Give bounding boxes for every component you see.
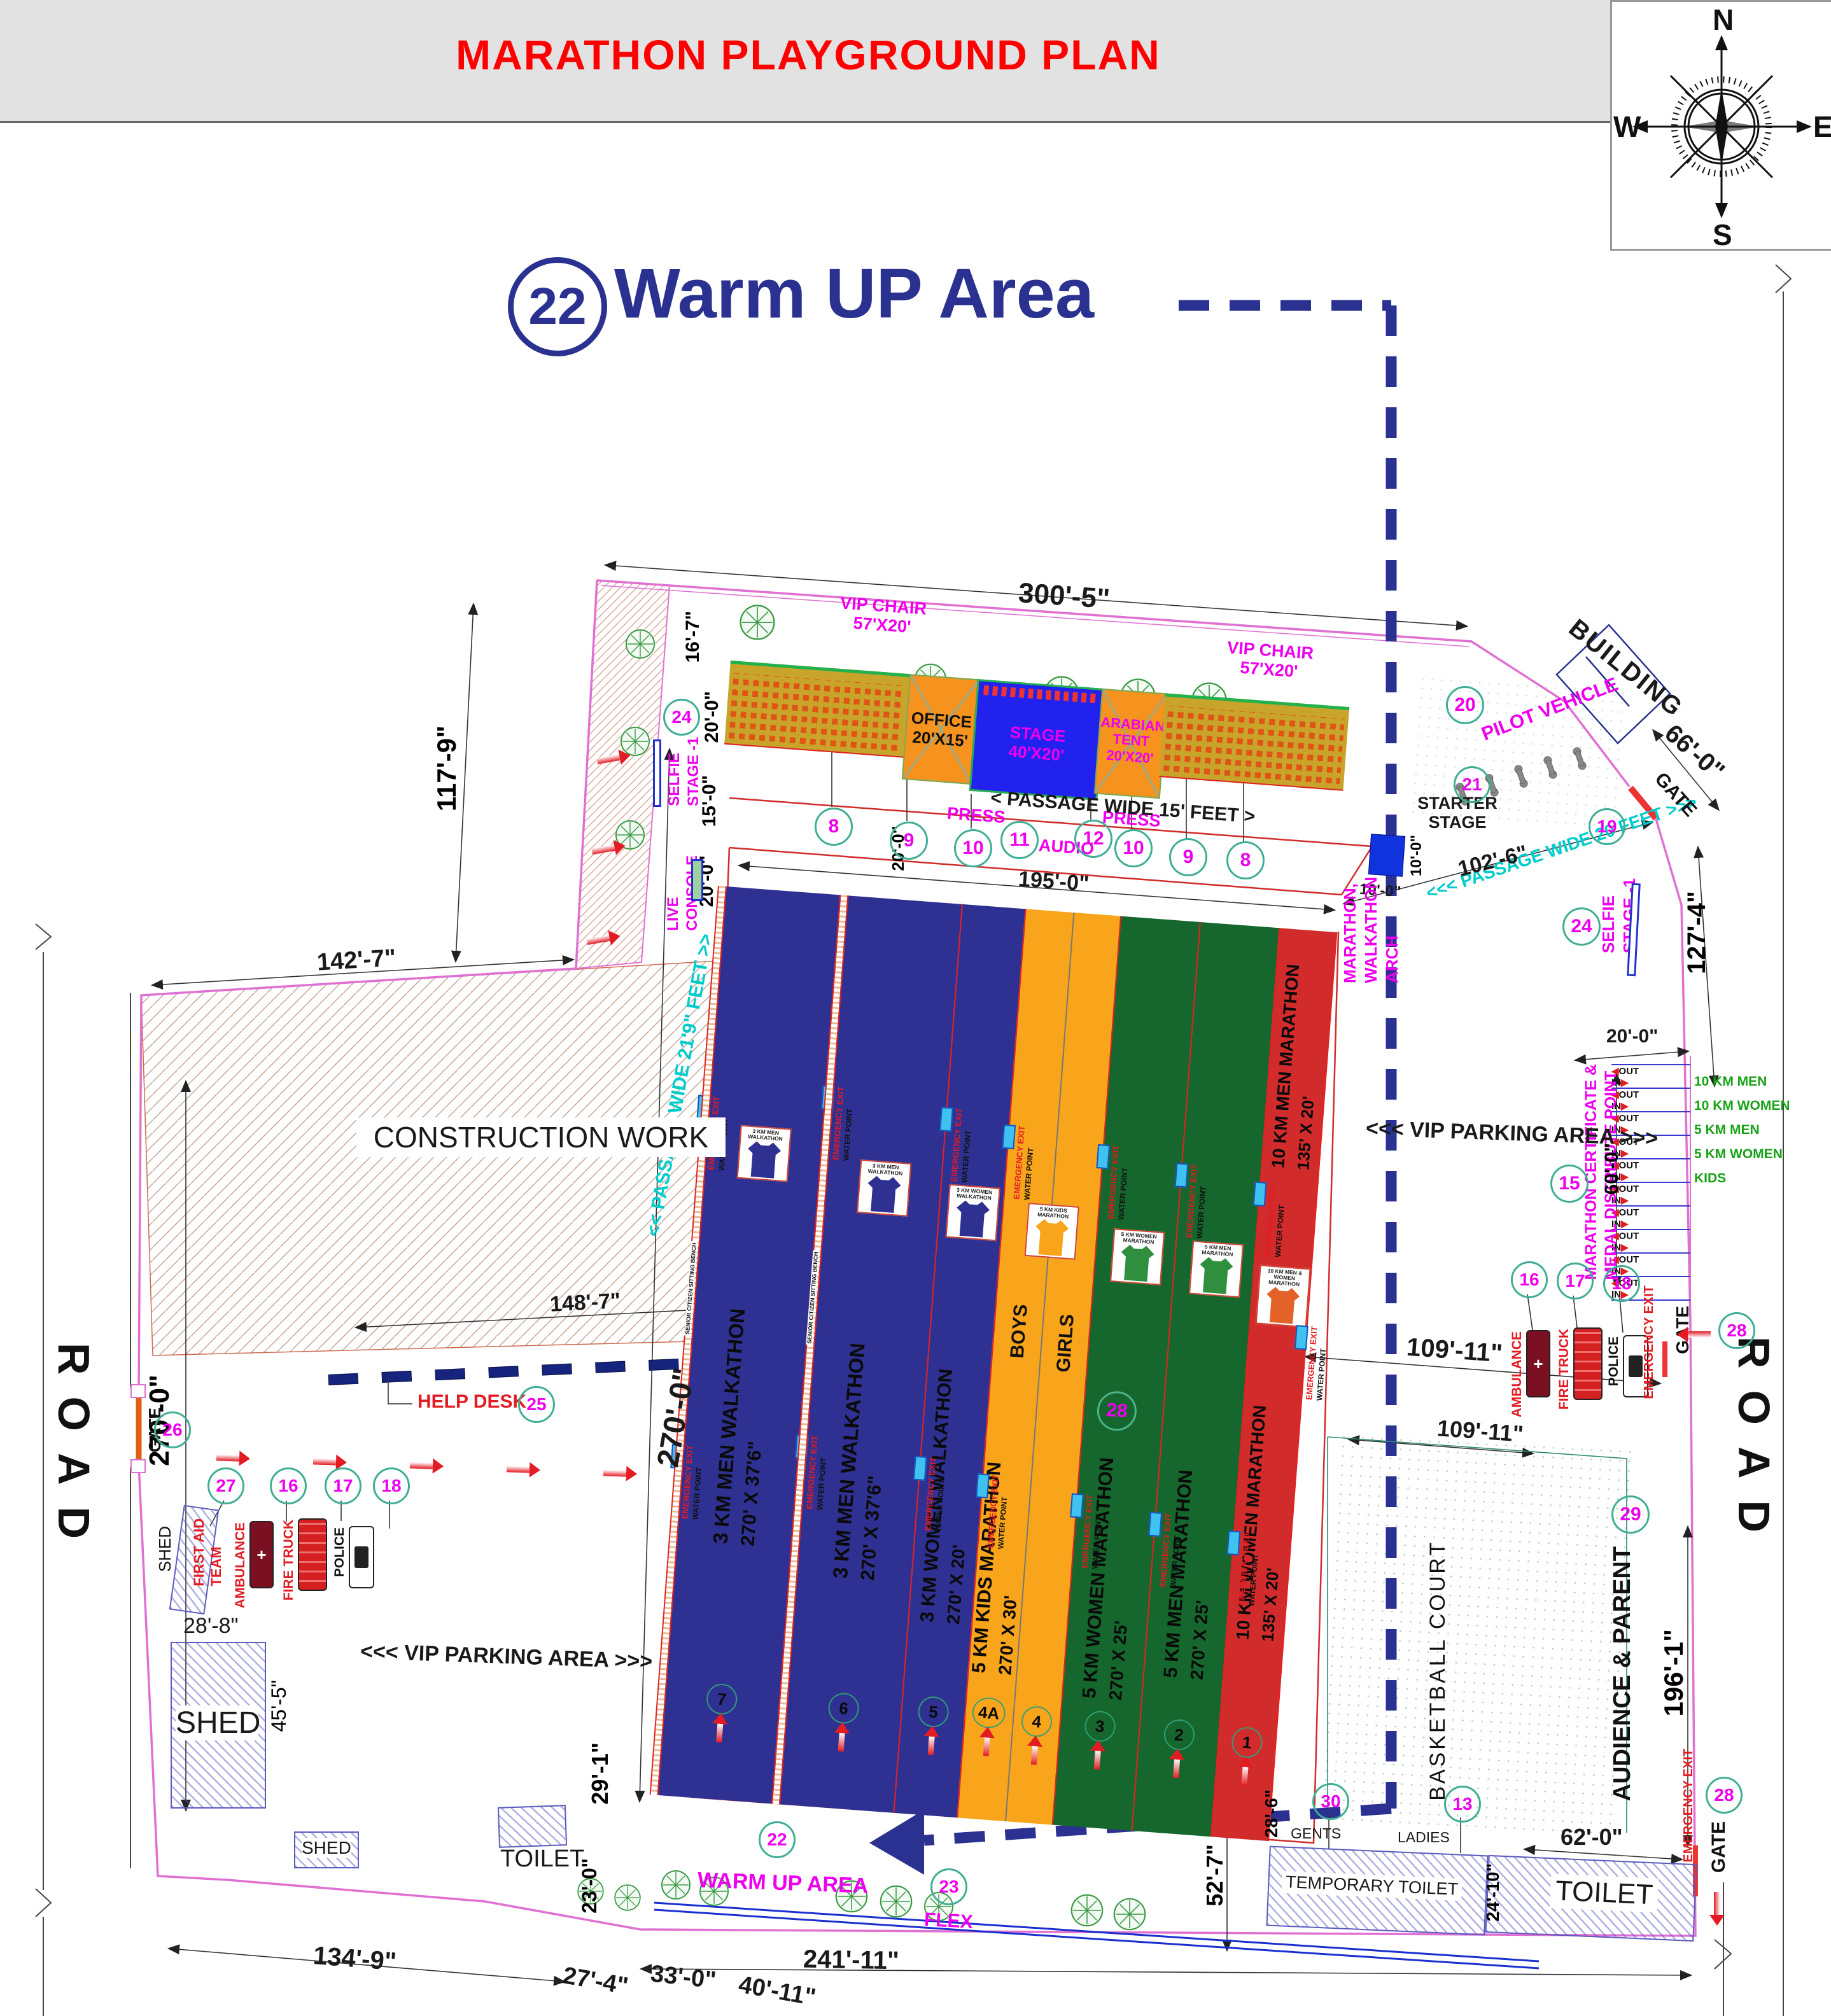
direction-arrow [507,1466,530,1473]
shed-small-label: SHED [302,1838,351,1858]
dim-45-5: 45'-5" [267,1680,291,1732]
water-point-cluster: EMERGENCY EXITWATER POINT [936,1107,974,1183]
water-point-cluster: EMERGENCY EXITWATER POINT [1093,1144,1132,1221]
office-block: OFFICE 20'X15' [902,674,980,785]
water-point-cluster: EMERGENCY EXITWATER POINT [1171,1163,1210,1239]
water-point-cluster: EMERGENCY EXITWATER POINT [1223,1530,1262,1607]
callout-24-left: 24 [663,699,700,736]
dim-23-0: 23'-0" [578,1858,601,1914]
water-point-icon [976,1473,990,1498]
lane-direction-arrow [838,1732,845,1752]
callout-8-right: 8 [1226,841,1265,879]
cert-cat-5km-women: 5 KM WOMEN [1694,1147,1783,1162]
callout-28-bottom: 28 [1706,1777,1743,1814]
live-console-marker [691,859,703,901]
dim-28-8: 28'-8" [183,1614,239,1639]
water-point-icon [1294,1325,1308,1350]
dim-24-10: 24'-10" [1483,1863,1503,1922]
callout-9-left: 9 [890,822,928,860]
audience-parent-label: AUDIENCE & PARENT [1609,1546,1636,1801]
dim-10-0-b: 10'-0" [1408,835,1426,876]
fire-truck-label-right: FIRE TRUCK [1557,1329,1572,1410]
emergency-exit-gate-bottom: EMERGENCY EXIT [1681,1749,1696,1863]
toilet-left-box [498,1805,567,1848]
callout-30: 30 [1312,1783,1349,1820]
water-point-cluster: EMERGENCY EXITWATER POINT [909,1456,948,1532]
ambulance-label-left: AMBULANCE [233,1522,248,1608]
first-aid-label: FIRST AID TEAM [191,1518,225,1586]
ambulance-icon: + [1526,1330,1550,1397]
dim-127-4: 127'-4" [1683,891,1711,974]
water-point-cluster: EMERGENCY EXITWATER POINT [972,1473,1011,1550]
dim-196-1: 196'-1" [1659,1629,1689,1716]
selfie-stage-left-label: SELFIE STAGE -1 [666,737,703,806]
dim-60-cert: 60'-0" [1601,1143,1623,1194]
starter-stage-label: STARTERSTAGE [1407,794,1508,832]
office-size: 20'X15' [906,727,975,752]
dim-300-5: 300'-5" [1017,577,1111,615]
callout-18-left: 18 [373,1467,410,1504]
gate-bottom-right-label: GATE [1708,1821,1730,1873]
compass-east: E [1813,110,1831,143]
dim-195-0: 195'-0" [1018,867,1090,897]
dim-148-7: 148'-7" [549,1289,621,1317]
lane-direction-arrow [716,1723,723,1743]
callout-10-right: 10 [1114,829,1153,867]
warmup-callout-number: 22 [528,277,586,337]
compass-rose-icon: N S E W [1612,2,1831,249]
basketball-outline [1328,1437,1627,1833]
callout-19: 19 [1589,808,1625,845]
warmup-route-arrowhead [869,1810,924,1875]
callout-17-left: 17 [325,1467,361,1504]
callout-10-left: 10 [954,829,992,867]
water-point-icon [939,1107,953,1131]
warmup-callout-label: Warm UP Area [614,253,1094,334]
callout-8-left: 8 [815,808,853,846]
cert-cat-10km-women: 10 KM WOMEN [1694,1098,1790,1114]
vip-chairs-grid [1163,706,1345,785]
direction-arrow [313,1458,336,1465]
police-label-left: POLICE [332,1527,347,1577]
dim-117-9: 117'-9" [431,725,462,811]
compass-west: W [1613,110,1641,143]
vip-chair-area-right [1159,693,1349,790]
dim-142-7: 142'-7" [316,944,397,977]
water-point-cluster: EMERGENCY EXITWATER POINT [1066,1493,1105,1569]
cert-cat-10km-men: 10 KM MEN [1694,1074,1767,1089]
callout-21: 21 [1454,766,1491,803]
police-car-icon [349,1526,374,1588]
dim-52-7: 52'-7" [1202,1844,1228,1907]
arabian-tent-block: ARABIAN TENT 20'X20' [1094,689,1168,799]
water-point-icon [1175,1163,1189,1187]
direction-arrow [603,1469,626,1476]
dim-28-6: 28'-6" [1261,1789,1282,1838]
dim-20-0-a: 20'-0" [701,691,723,743]
shed-large-label: SHED [176,1705,258,1740]
callout-17-right: 17 [1557,1263,1594,1299]
callout-22-bottom: 22 [759,1821,796,1858]
callout-29: 29 [1611,1495,1650,1534]
callout-26: 26 [154,1411,191,1448]
callout-28-mid: 28 [1718,1312,1755,1349]
cert-cat-5km-men: 5 KM MEN [1694,1123,1760,1138]
boys-label: BOYS [1007,1303,1032,1359]
callout-18-right: 18 [1603,1265,1640,1302]
dim-241-11: 241'-11" [803,1945,900,1976]
arch-label: MARATHON, WALKATHON ARCH [1340,877,1402,983]
dim-29-1: 29'-1" [587,1742,614,1805]
dim-62-0: 62'-0" [1561,1824,1623,1851]
callout-9-right: 9 [1169,838,1207,876]
lane-direction-arrow [1241,1767,1248,1786]
ambulance-label-right: AMBULANCE [1510,1331,1525,1417]
callout-24-right: 24 [1562,907,1601,946]
toilet-left-label: TOILET [500,1845,584,1873]
water-point-cluster: EMERGENCY EXITWATER POINT [998,1124,1037,1201]
stage-block: STAGE 40'X20' [969,679,1106,801]
lane-direction-arrow [1030,1746,1037,1765]
direction-arrow [410,1462,433,1469]
water-point-cluster: EMERGENCY EXITWATER POINT [1144,1512,1183,1588]
callout-11: 11 [1000,821,1039,859]
water-point-icon [1253,1182,1267,1207]
vip-chairs-grid [729,673,905,751]
callout-27: 27 [207,1467,244,1504]
callout-28-lane: 28 [1096,1390,1138,1432]
direction-arrow [216,1454,239,1461]
fire-truck-icon [1573,1327,1603,1400]
callout-16-left: 16 [270,1467,307,1504]
marathon-playground-plan: MARATHON PLAYGROUND PLAN N S [0,0,1831,2016]
water-point-icon [1096,1144,1110,1169]
lane-direction-arrow [1173,1759,1180,1779]
fire-truck-icon [298,1518,327,1591]
cert-cat-kids: KIDS [1694,1171,1726,1186]
police-label-right: POLICE [1606,1336,1622,1386]
water-point-icon [1226,1530,1240,1555]
gate-mid-arrow [1688,1331,1711,1338]
flex-label: FLEX [923,1909,973,1933]
lane-direction-arrow [927,1736,934,1756]
compass-box: N S E W [1610,0,1831,251]
dim-16-7: 16'-7" [682,611,704,662]
toilet-right-label: TOILET [1550,1873,1659,1912]
callout-20: 20 [1446,686,1484,724]
starter-stage-box [1368,834,1405,877]
shed-label-vert: SHED [155,1526,175,1572]
construction-label: CONSTRUCTION WORK [356,1117,726,1157]
lane-direction-arrow [1094,1750,1101,1770]
road-label-right: ROAD [1729,1336,1779,1554]
fire-truck-label-left: FIRE TRUCK [281,1520,297,1600]
callout-15: 15 [1550,1165,1589,1203]
vip-chair-area-left [724,661,909,758]
callout-23: 23 [930,1868,967,1905]
selfie-stage-left-marker [653,739,661,807]
water-point-cluster: EMERGENCY EXITWATER POINT [1291,1325,1329,1401]
girls-label: GIRLS [1053,1313,1079,1373]
help-desk-label: HELP DESK [417,1391,526,1413]
emergency-exit-gate-mid: EMERGENCY EXIT [1642,1285,1657,1399]
water-point-icon [1070,1493,1084,1518]
ambulance-icon: + [249,1521,274,1588]
gents-label: GENTS [1291,1825,1341,1842]
compass-north: N [1713,3,1734,36]
ladies-label: LADIES [1398,1829,1450,1846]
basketball-label: BASKETBALL COURT [1426,1540,1450,1801]
gate-bottom-arrow [1714,1892,1720,1915]
track-lanes: SENIOR CITIZEN SITTING BENCH 3 KM MEN WA… [650,886,1336,1841]
water-point-icon [1148,1512,1162,1537]
warmup-callout-circle: 22 [508,257,607,356]
stage-chair-row [983,685,1098,703]
dim-20-cert: 20'-0" [1606,1026,1658,1047]
water-point-icon [913,1456,927,1481]
callout-25: 25 [518,1386,555,1423]
callout-12: 12 [1074,820,1112,858]
compass-south: S [1713,218,1732,249]
water-point-cluster: EMERGENCY EXITWATER POINT [1249,1182,1288,1258]
road-label-left: ROAD [48,1343,99,1560]
callout-16-right: 16 [1511,1261,1548,1298]
callout-13: 13 [1444,1786,1481,1823]
water-point-icon [1002,1124,1016,1149]
page-title: MARATHON PLAYGROUND PLAN [395,31,1222,79]
